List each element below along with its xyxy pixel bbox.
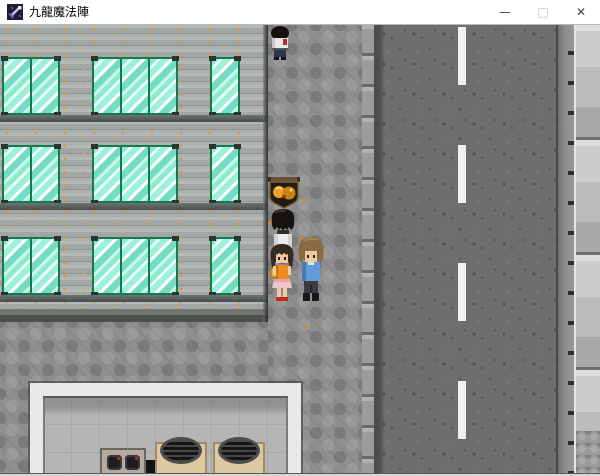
sparkle-icon xyxy=(268,221,271,224)
maximize-button[interactable]: □ xyxy=(524,0,562,25)
burner-icon xyxy=(125,455,140,470)
grill-icon xyxy=(218,437,260,464)
grill-icon xyxy=(160,437,202,464)
sprite-boy-blue-shirt xyxy=(296,235,326,303)
window-group xyxy=(2,237,60,295)
app-icon xyxy=(7,4,23,20)
sprite-girl-orange-top xyxy=(267,240,297,303)
close-button[interactable]: ✕ xyxy=(562,0,600,25)
window-group xyxy=(210,57,240,115)
window-row-2 xyxy=(0,145,268,203)
app-window: 九龍魔法陣 — □ ✕ xyxy=(0,0,600,476)
sprite-pedestrian-walking-up xyxy=(267,25,293,61)
window-group xyxy=(92,145,178,203)
sparkle-icon xyxy=(305,325,308,328)
window-group xyxy=(92,57,178,115)
window-sill xyxy=(0,295,268,302)
window-row-1 xyxy=(0,57,268,115)
grill-table xyxy=(155,442,207,476)
road-asphalt xyxy=(378,25,556,476)
right-pavement xyxy=(574,25,600,476)
shop-sign-icon xyxy=(267,177,301,209)
building-facade xyxy=(0,25,268,322)
burner-icon xyxy=(107,455,122,470)
window-sill xyxy=(0,203,268,210)
window-group xyxy=(210,145,240,203)
window-controls: — □ ✕ xyxy=(486,0,600,25)
window-group xyxy=(2,57,60,115)
pavement-texture-tile xyxy=(576,431,600,476)
window-sill xyxy=(0,115,268,122)
right-curb xyxy=(556,25,574,476)
window-title: 九龍魔法陣 xyxy=(29,0,89,25)
lane-divider-line xyxy=(458,25,466,476)
grill-table xyxy=(213,442,265,476)
game-viewport[interactable] xyxy=(0,25,600,476)
sparkle-icon xyxy=(302,197,305,200)
sparkle-icon xyxy=(300,237,303,240)
window-group xyxy=(210,237,240,295)
stove xyxy=(100,448,146,476)
window-group xyxy=(92,237,178,295)
building-shadow xyxy=(0,315,268,322)
window-group xyxy=(2,145,60,203)
left-curb xyxy=(362,25,378,476)
minimize-button[interactable]: — xyxy=(486,0,524,25)
window-row-3 xyxy=(0,237,268,295)
title-bar[interactable]: 九龍魔法陣 — □ ✕ xyxy=(0,0,600,25)
